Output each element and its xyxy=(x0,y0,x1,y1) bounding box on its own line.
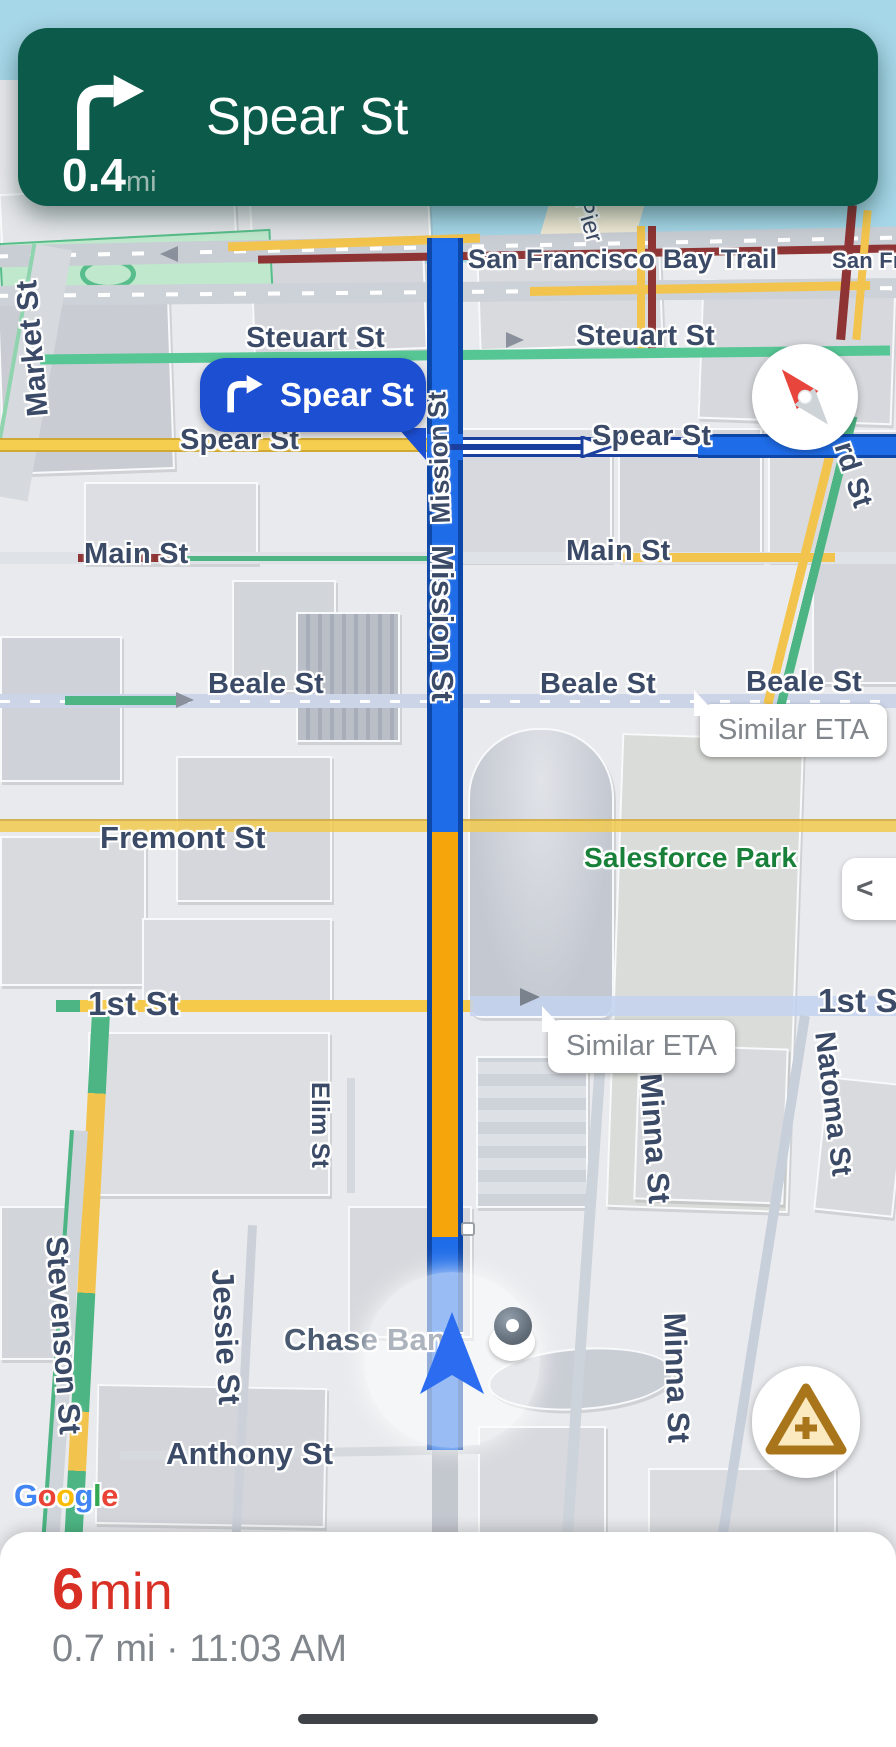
maneuver-callout-label: Spear St xyxy=(280,376,414,414)
road-elim xyxy=(347,1078,355,1193)
road-main-green xyxy=(175,556,435,561)
street-label-spear-e: Spear St xyxy=(592,420,711,453)
route-congestion-segment xyxy=(432,832,458,1237)
banner-distance: 0.4mi xyxy=(62,148,157,202)
compass-needle-icon xyxy=(752,344,858,450)
eta-value: 6 xyxy=(52,1557,84,1622)
report-incident-icon xyxy=(752,1366,860,1478)
navigation-screen: Market St Steuart St Steuart St San Fran… xyxy=(0,0,896,1747)
maneuver-banner[interactable]: 0.4mi Spear St xyxy=(18,28,878,206)
street-label-main-w: Main St xyxy=(84,538,189,571)
street-label-fremont: Fremont St xyxy=(100,820,266,856)
drag-handle[interactable] xyxy=(298,1714,598,1724)
street-label-beale-w: Beale St xyxy=(208,668,324,701)
street-label-first-e: 1st S xyxy=(818,982,896,1020)
eta-callout-text: Similar ETA xyxy=(566,1030,717,1062)
oneway-arrow-icon xyxy=(160,246,178,262)
turn-arrow-icon xyxy=(520,988,540,1006)
map-canvas[interactable]: Market St Steuart St Steuart St San Fran… xyxy=(0,0,896,1747)
street-label-mission-s: Mission St xyxy=(424,545,460,702)
street-label-steuart-w: Steuart St xyxy=(246,322,385,355)
google-logo: Google xyxy=(14,1478,118,1514)
oneway-arrow-icon xyxy=(176,692,194,708)
street-label-jessie: Jessie St xyxy=(204,1268,247,1406)
navigation-arrow-icon xyxy=(406,1306,498,1410)
road-first-green xyxy=(56,1000,80,1012)
turn-right-icon xyxy=(220,371,268,419)
compass-button[interactable] xyxy=(752,344,858,450)
street-label-first-w: 1st St xyxy=(88,985,179,1023)
oneway-arrow-icon xyxy=(506,332,524,348)
bottom-sheet[interactable]: 6 min 0.7 mi · 11:03 AM xyxy=(0,1532,896,1747)
street-label-bay-trail-partial: San Fra xyxy=(832,248,896,274)
street-label-main-e: Main St xyxy=(566,535,671,568)
poi-label-salesforce-park: Salesforce Park xyxy=(584,842,797,874)
eta-callout-tail xyxy=(542,1006,566,1032)
street-label-steuart-e: Steuart St xyxy=(576,320,715,353)
banner-distance-value: 0.4 xyxy=(62,149,126,201)
eta-callout-text: Similar ETA xyxy=(718,714,869,746)
street-label-beale-e: Beale St xyxy=(746,666,862,699)
street-label-elim: Elim St xyxy=(305,1082,334,1168)
turn-right-icon xyxy=(64,72,150,152)
eta-callout-first[interactable]: Similar ETA xyxy=(548,1020,735,1073)
banner-street-name: Spear St xyxy=(206,28,408,206)
eta-unit: min xyxy=(89,1563,173,1621)
eta-text: 6 min xyxy=(52,1556,173,1623)
intersection-marker xyxy=(461,1222,475,1236)
maneuver-callout-tail xyxy=(398,428,426,460)
collapse-panel-button[interactable]: < xyxy=(842,858,896,920)
trip-details: 0.7 mi · 11:03 AM xyxy=(52,1628,347,1671)
maneuver-callout[interactable]: Spear St xyxy=(200,358,426,432)
banner-distance-unit: mi xyxy=(126,166,157,198)
street-label-minna-s: Minna St xyxy=(656,1312,697,1444)
street-label-bay-trail: San Francisco Bay Trail xyxy=(468,244,777,275)
spear-flow-arrow-icon xyxy=(448,436,612,458)
map-pin-dot xyxy=(506,1319,519,1332)
report-button[interactable] xyxy=(752,1366,860,1478)
road-beale-green xyxy=(65,696,180,705)
street-label-anthony: Anthony St xyxy=(166,1436,333,1472)
chevron-left-icon: < xyxy=(856,872,874,906)
street-label-beale-m: Beale St xyxy=(540,668,656,701)
street-label-mission-n: Mission St xyxy=(421,391,457,524)
eta-callout-tail xyxy=(694,690,718,716)
eta-callout-beale[interactable]: Similar ETA xyxy=(700,704,887,757)
